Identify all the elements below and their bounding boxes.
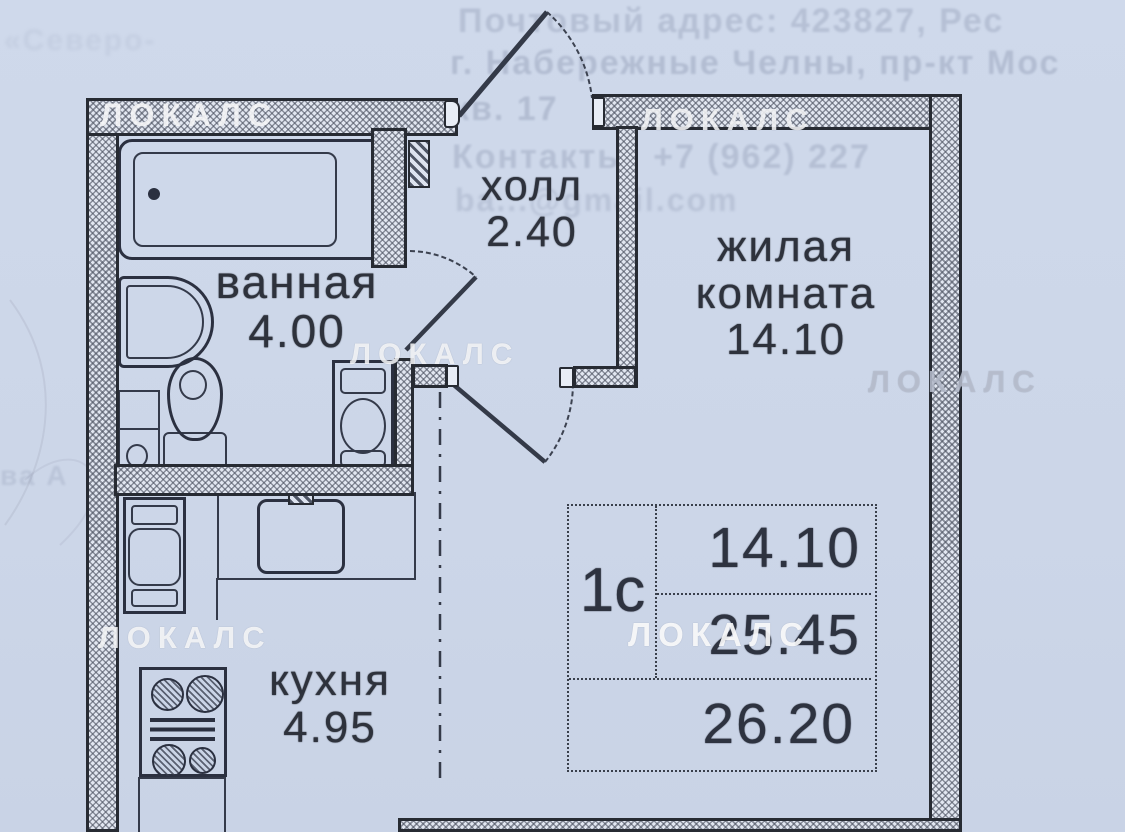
- bathroom-cabinet-divider: [118, 428, 160, 430]
- hall-label: холл 2.40: [452, 164, 612, 255]
- kitchen-name: кухня: [269, 658, 391, 705]
- watermark-3: ЛОКАЛС: [350, 338, 519, 372]
- bathtub-drain: [148, 188, 160, 200]
- watermark-1: ЛОКАЛС: [100, 97, 278, 134]
- washing-machine-drum: [340, 398, 386, 454]
- wall-bottom-outer: [398, 818, 962, 832]
- kitchen-counter-return: [216, 578, 218, 620]
- watermark-2: ЛОКАЛС: [641, 102, 815, 138]
- stove-cabinet: [138, 777, 226, 832]
- watermark-6: ЛОКАЛС: [628, 616, 810, 654]
- hall-area: 2.40: [486, 210, 578, 256]
- living-room-area: 14.10: [726, 317, 846, 364]
- kitchen-area: 4.95: [283, 705, 377, 752]
- hall-name: холл: [481, 164, 583, 210]
- living-door-arc: [545, 385, 573, 462]
- living-room-name-line2: комната: [696, 271, 876, 318]
- bathroom-area: 4.00: [248, 307, 346, 356]
- fridge-top-shelf: [131, 505, 178, 525]
- bathtub-inner: [133, 152, 337, 247]
- ghost-address-line2: г. Набережные Челны, пр-кт Мос: [450, 44, 1060, 83]
- ghost-corner-text: «Северо-: [4, 24, 156, 58]
- stove-burner-br: [189, 747, 216, 774]
- living-door-jamb: [559, 367, 574, 388]
- kitchen-sink: [257, 499, 345, 574]
- wall-bathroom-right-upper: [371, 128, 407, 268]
- living-room-name-line1: жилая: [717, 224, 855, 271]
- fridge-bottom-shelf: [131, 589, 178, 607]
- area-table-row-divider-2: [569, 678, 871, 680]
- stove-burner-tr: [186, 675, 224, 713]
- ghost-address-line3: кв. 17: [452, 90, 559, 129]
- wall-bathroom-right-lower: [394, 358, 414, 470]
- vent-shaft-block: [408, 140, 430, 188]
- stove-burner-tl: [151, 678, 184, 711]
- total-area-cell: 26.20: [567, 688, 855, 760]
- wall-right-outer: [929, 94, 962, 832]
- floorplan-scan: «Северо- Почтовый адрес: 423827, Рес г. …: [0, 0, 1125, 832]
- watermark-5: ЛОКАЛС: [98, 620, 272, 656]
- watermark-4: ЛОКАЛС: [868, 364, 1042, 400]
- wall-bathroom-bottom: [114, 464, 414, 496]
- bathroom-name: ванная: [216, 258, 379, 307]
- ghost-address-line1: Почтовый адрес: 423827, Рес: [458, 2, 1004, 41]
- living-room-label: жилая комната 14.10: [660, 224, 912, 364]
- entrance-jamb-right: [592, 97, 605, 127]
- toilet-flush: [179, 370, 207, 400]
- area-table-row-divider-1: [657, 593, 871, 595]
- stove-burner-bl: [152, 744, 186, 778]
- living-door-leaf: [448, 380, 545, 462]
- wall-living-inner-stub: [573, 366, 637, 388]
- living-area-cell: 14.10: [655, 510, 861, 586]
- ghost-left-fragment: ва А: [0, 460, 68, 492]
- wall-living-inner-vertical: [616, 126, 638, 388]
- stove-grill: [150, 718, 215, 742]
- fridge-body: [128, 528, 181, 586]
- kitchen-label: кухня 4.95: [230, 658, 430, 751]
- entrance-jamb-left: [444, 100, 460, 128]
